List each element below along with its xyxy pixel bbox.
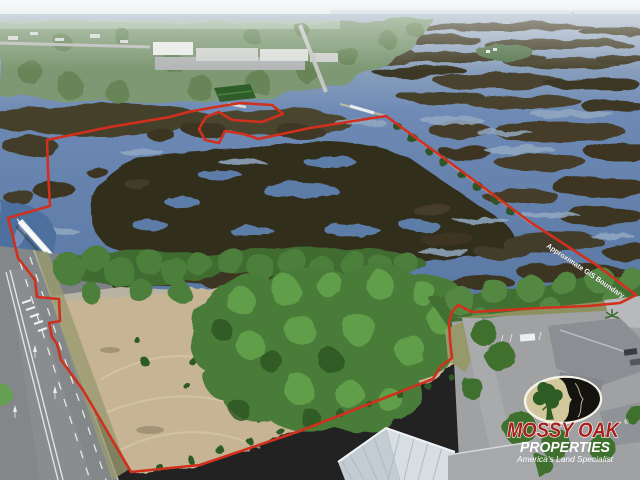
aerial-property-photo: Approximate GIS Boundary MOSSY OAK ® PRO… [0,0,640,480]
logo-registered-mark: ® [624,419,629,426]
aerial-scene: Approximate GIS Boundary MOSSY OAK ® PRO… [0,0,640,480]
logo-properties: PROPERTIES [520,439,610,456]
white-car [520,333,536,341]
logo-tagline: America's Land Specialist [516,455,614,464]
atmospheric-haze [0,0,640,70]
